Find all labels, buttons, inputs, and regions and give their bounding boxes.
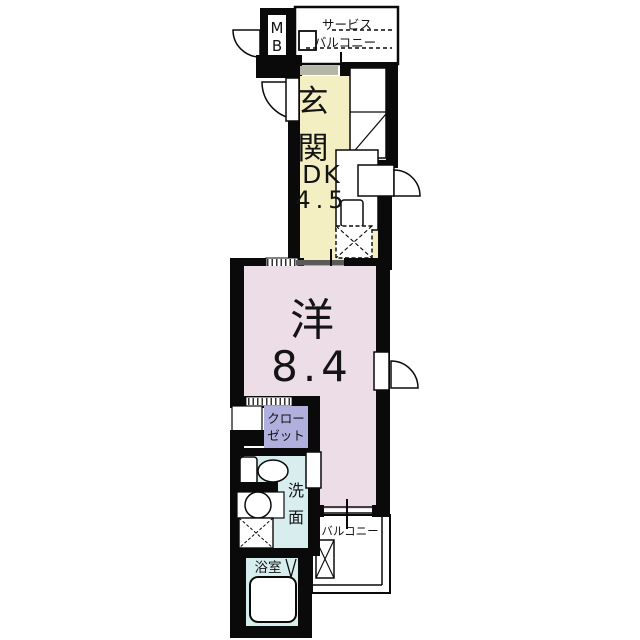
sliding-door-panel — [296, 260, 344, 266]
mb-label-char2: B — [272, 37, 282, 55]
bathroom-label: 浴室 — [255, 559, 282, 576]
washroom-label-char2: 面 — [288, 508, 304, 527]
bathtub — [250, 577, 296, 622]
entrance-label-char1: 玄 — [298, 84, 329, 120]
service-balcony-label-line2: バルコニー — [314, 35, 376, 50]
balcony-label: バルコニー — [321, 524, 378, 538]
mb-door-arc — [233, 30, 260, 57]
washroom-door-leaf — [306, 452, 321, 488]
wall — [230, 258, 244, 398]
toilet-bowl — [258, 460, 288, 482]
kitchen-pass-through — [358, 165, 394, 196]
western-room-area-label: 8.4 — [271, 342, 353, 391]
dk-area-label: 4.5 — [295, 186, 348, 214]
dk-side-door-arc — [394, 170, 420, 196]
wall — [230, 430, 264, 446]
washroom-label-char1: 洗 — [288, 481, 304, 500]
mb-label-char1: M — [271, 19, 284, 37]
entrance-sill — [300, 66, 338, 75]
wash-basin — [245, 492, 271, 518]
service-balcony-label-line1: サービス — [322, 17, 372, 32]
western-room-label: 洋 — [290, 295, 334, 346]
dk-label: DK — [302, 160, 342, 189]
floor-plan: サービス バルコニー M B 玄 関 DK 4.5 洋 8.4 — [0, 0, 640, 640]
wall — [386, 62, 398, 168]
closet-label-line2: ゼット — [267, 428, 305, 443]
closet-niche — [232, 406, 262, 432]
closet-label-line1: クロー — [267, 411, 305, 426]
wall — [372, 505, 390, 517]
toilet-tank — [240, 457, 257, 486]
shoe-cabinet — [350, 68, 386, 158]
western-room-door-leaf — [374, 352, 389, 390]
western-room-door-arc — [391, 361, 418, 388]
wall — [230, 482, 278, 492]
floor-plan-page: サービス バルコニー M B 玄 関 DK 4.5 洋 8.4 — [0, 0, 640, 640]
